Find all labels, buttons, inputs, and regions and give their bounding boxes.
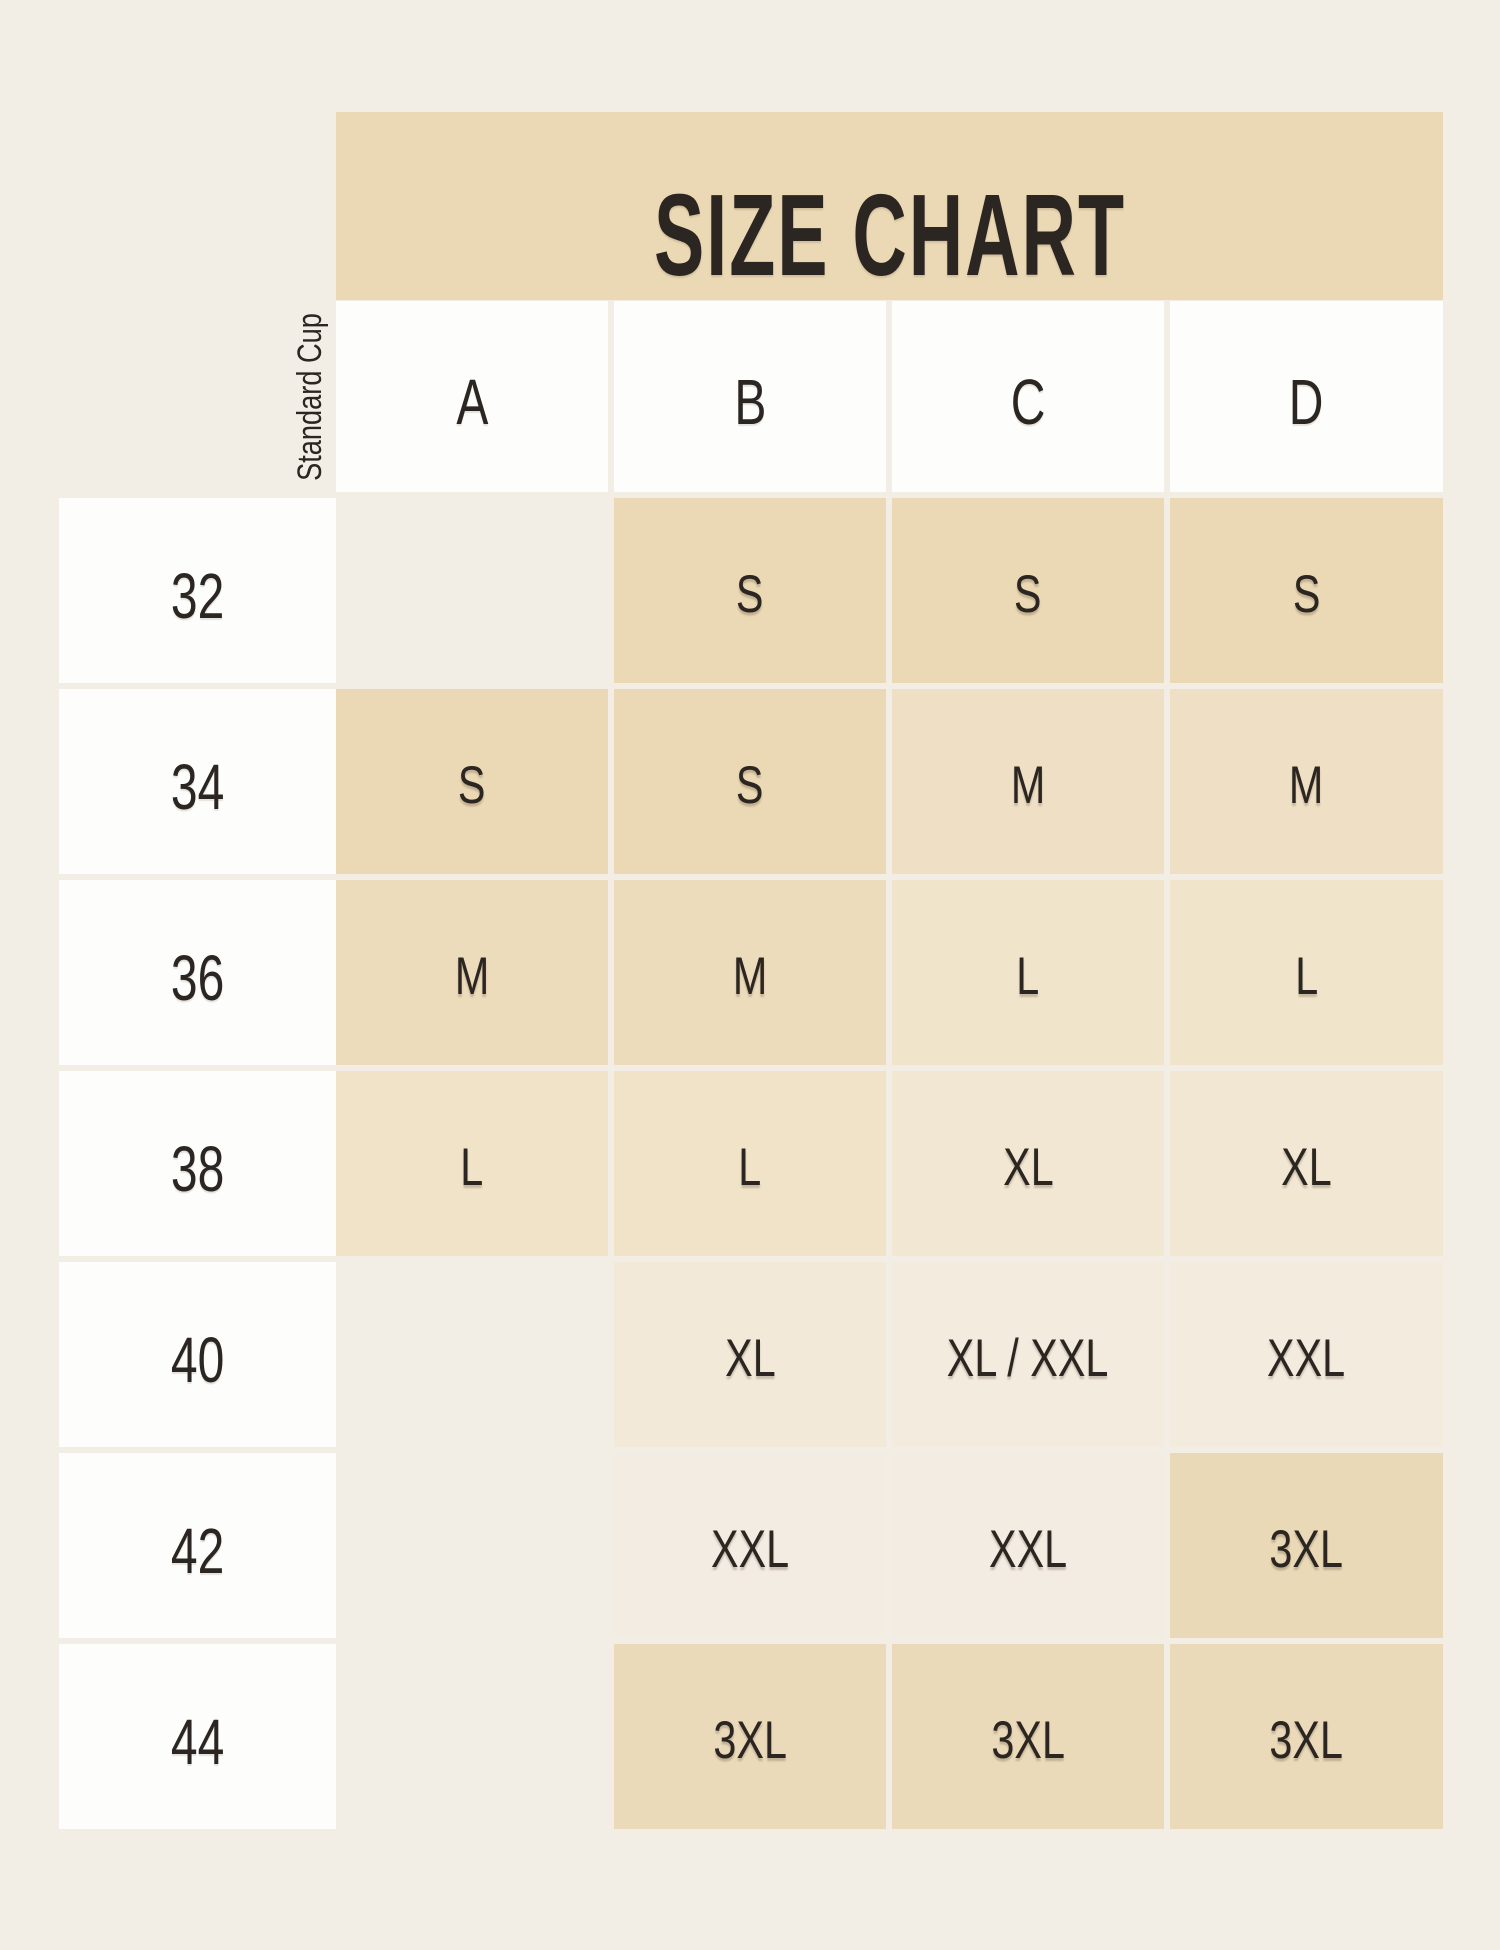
- cell-34-B: S: [614, 689, 886, 874]
- band-label-32-label: 32: [171, 564, 224, 628]
- cell-40-C: XL / XXL: [892, 1262, 1164, 1447]
- cell-44-D-label: 3XL: [1270, 1714, 1344, 1767]
- cell-42-D-label: 3XL: [1270, 1523, 1344, 1576]
- cell-38-B: L: [614, 1071, 886, 1256]
- page-title: SIZE CHART: [654, 177, 1126, 293]
- band-label-34: 34: [59, 689, 336, 874]
- cell-36-A: M: [336, 880, 608, 1065]
- title-band: SIZE CHART: [336, 112, 1443, 300]
- header-col-B: B: [614, 301, 886, 492]
- cell-38-C: XL: [892, 1071, 1164, 1256]
- band-label-40: 40: [59, 1262, 336, 1447]
- cell-36-C-label: L: [1016, 950, 1039, 1003]
- cell-34-A: S: [336, 689, 608, 874]
- header-col-D: D: [1170, 301, 1443, 492]
- standard-cup-label-text: Standard Cup: [293, 313, 327, 481]
- cell-38-C-label: XL: [1003, 1141, 1054, 1194]
- cell-34-B-label: S: [736, 759, 764, 812]
- cell-34-D-label: M: [1289, 759, 1323, 812]
- header-col-D-label: D: [1289, 370, 1324, 434]
- cell-44-B: 3XL: [614, 1644, 886, 1829]
- cell-42-D: 3XL: [1170, 1453, 1443, 1638]
- cell-40-D-label: XXL: [1267, 1332, 1345, 1385]
- cell-40-B: XL: [614, 1262, 886, 1447]
- cell-36-C: L: [892, 880, 1164, 1065]
- cell-42-B: XXL: [614, 1453, 886, 1638]
- cell-42-B-label: XXL: [711, 1523, 789, 1576]
- header-col-C: C: [892, 301, 1164, 492]
- cell-36-D-label: L: [1295, 950, 1318, 1003]
- cell-42-C: XXL: [892, 1453, 1164, 1638]
- cell-44-B-label: 3XL: [713, 1714, 787, 1767]
- band-label-38-label: 38: [171, 1137, 224, 1201]
- cell-36-B-label: M: [733, 950, 767, 1003]
- cell-38-A-label: L: [460, 1141, 483, 1194]
- cell-34-A-label: S: [458, 759, 486, 812]
- band-label-36: 36: [59, 880, 336, 1065]
- header-col-A: A: [336, 301, 608, 492]
- header-col-A-label: A: [456, 370, 488, 434]
- band-label-32: 32: [59, 498, 336, 683]
- cell-40-B-label: XL: [725, 1332, 776, 1385]
- cell-42-C-label: XXL: [989, 1523, 1067, 1576]
- cell-40-C-label: XL / XXL: [947, 1332, 1109, 1385]
- cell-36-D: L: [1170, 880, 1443, 1065]
- band-label-42: 42: [59, 1453, 336, 1638]
- header-col-B-label: B: [734, 370, 766, 434]
- band-label-36-label: 36: [171, 946, 224, 1010]
- cell-32-B-label: S: [736, 568, 764, 621]
- cell-32-B: S: [614, 498, 886, 683]
- cell-32-C-label: S: [1014, 568, 1042, 621]
- band-label-42-label: 42: [171, 1519, 224, 1583]
- band-label-44-label: 44: [171, 1710, 224, 1774]
- cell-44-C: 3XL: [892, 1644, 1164, 1829]
- cell-34-D: M: [1170, 689, 1443, 874]
- cell-40-D: XXL: [1170, 1262, 1443, 1447]
- cell-38-A: L: [336, 1071, 608, 1256]
- cell-34-C: M: [892, 689, 1164, 874]
- cell-36-B: M: [614, 880, 886, 1065]
- cell-38-B-label: L: [738, 1141, 761, 1194]
- band-label-38: 38: [59, 1071, 336, 1256]
- band-label-40-label: 40: [171, 1328, 224, 1392]
- cell-34-C-label: M: [1011, 759, 1045, 812]
- cell-44-D: 3XL: [1170, 1644, 1443, 1829]
- header-col-C-label: C: [1011, 370, 1046, 434]
- size-chart-page: SIZE CHART Standard Cup ABCD 32SSS34SSMM…: [0, 0, 1500, 1950]
- cell-36-A-label: M: [455, 950, 489, 1003]
- cell-32-D-label: S: [1293, 568, 1321, 621]
- cell-32-D: S: [1170, 498, 1443, 683]
- cell-44-C-label: 3XL: [991, 1714, 1065, 1767]
- band-label-34-label: 34: [171, 755, 224, 819]
- cell-38-D: XL: [1170, 1071, 1443, 1256]
- standard-cup-label: Standard Cup: [284, 301, 336, 492]
- band-label-44: 44: [59, 1644, 336, 1829]
- cell-32-C: S: [892, 498, 1164, 683]
- cell-38-D-label: XL: [1281, 1141, 1332, 1194]
